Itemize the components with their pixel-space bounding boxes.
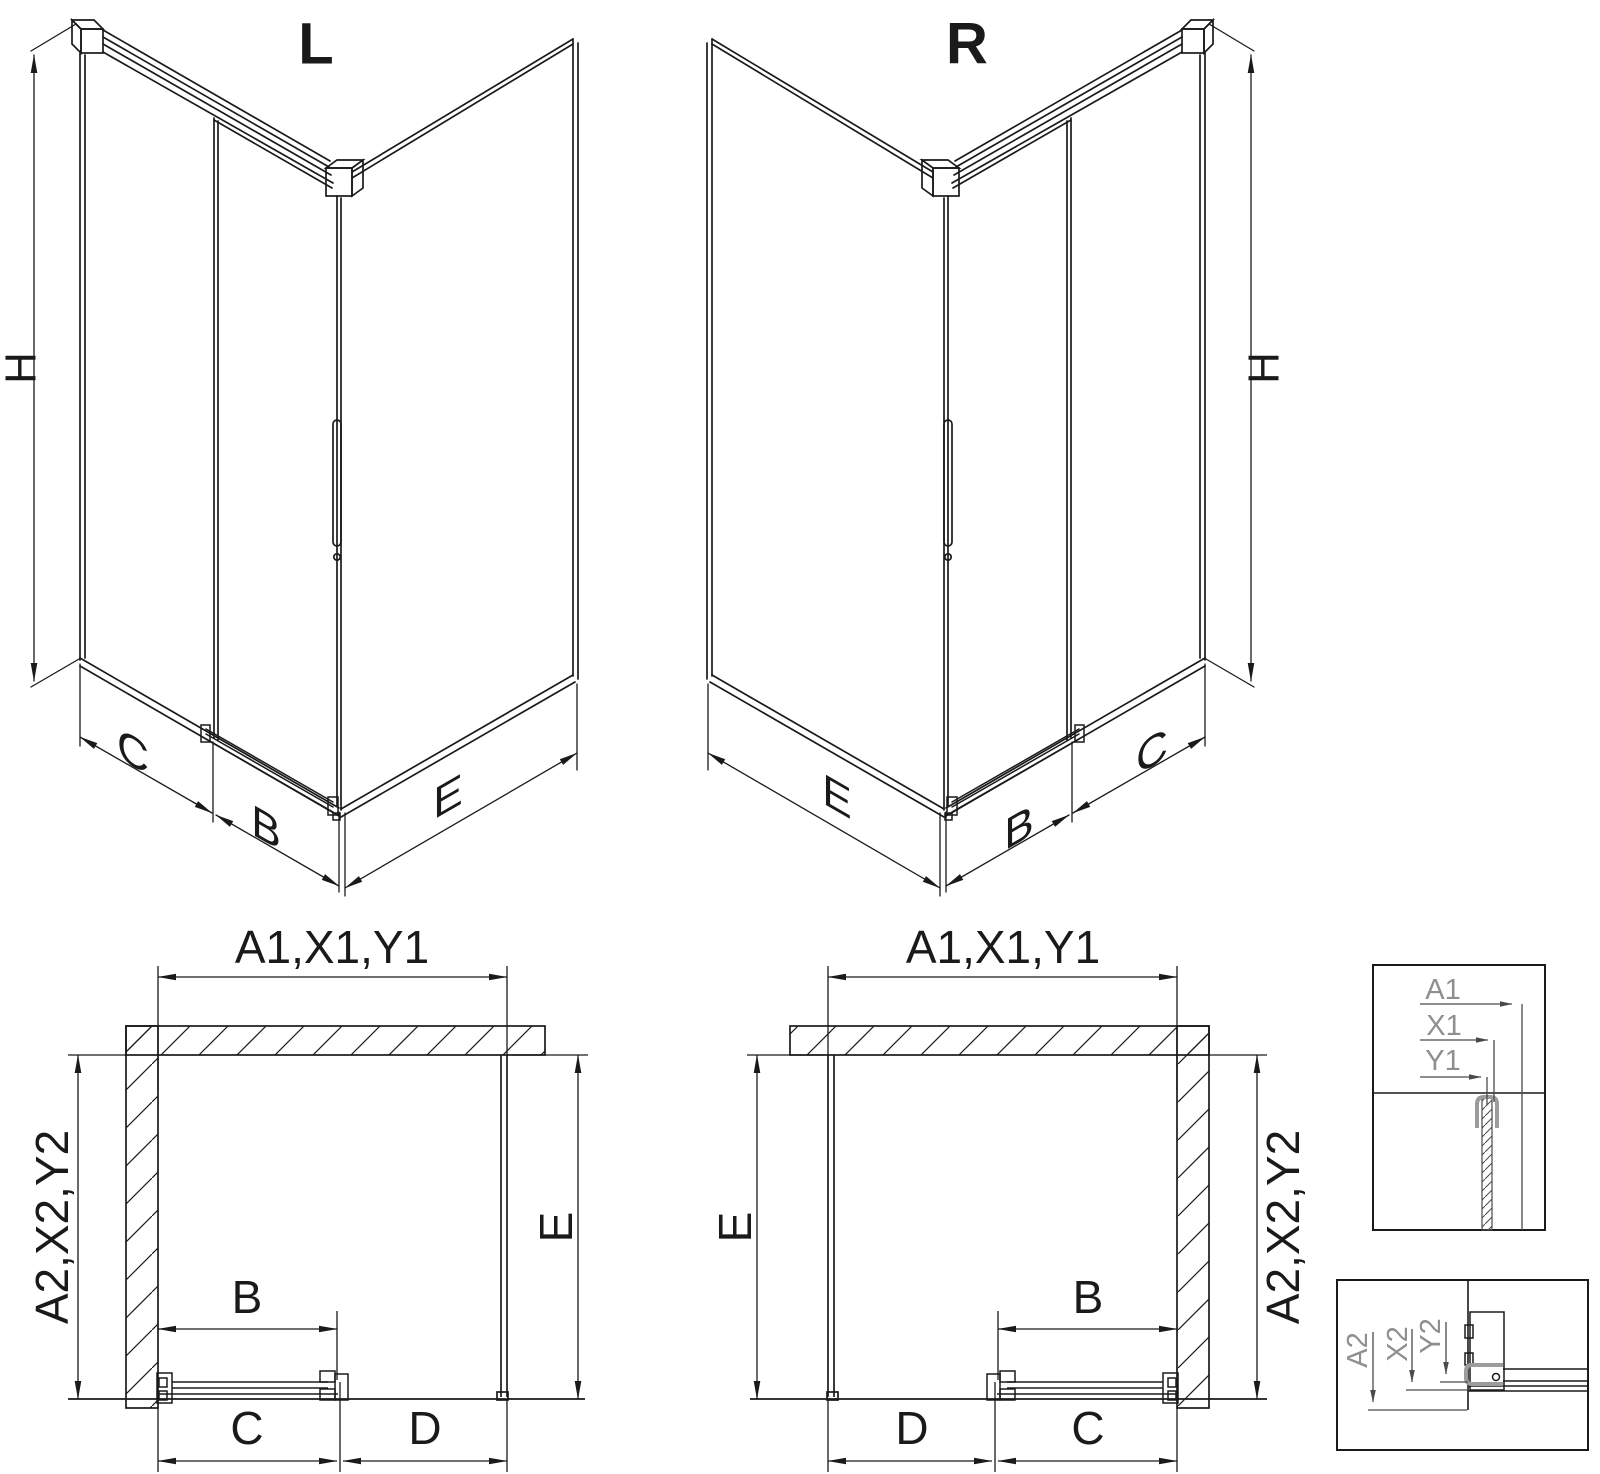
- plan-left-door-label: B: [232, 1271, 263, 1323]
- plan-right-depth-label: A2,X2,Y2: [1257, 1130, 1309, 1324]
- detail-top-a1-label: A1: [1425, 974, 1460, 1006]
- iso-right-fixed-panel-label: C: [1136, 718, 1168, 785]
- plan-left-bottom-outer-label: D: [408, 1402, 441, 1454]
- detail-top-y1-label: Y1: [1425, 1045, 1460, 1077]
- detail-bottom-x2-label: X2: [1382, 1326, 1414, 1361]
- door-rail-section: [1465, 1312, 1588, 1391]
- plan-left-depth-label: A2,X2,Y2: [26, 1130, 78, 1324]
- plan-left-bottom-inner-label: C: [230, 1402, 263, 1454]
- iso-enclosure-geometry-right: [707, 20, 1254, 896]
- plan-right-wall-hatch: [790, 1026, 1209, 1408]
- iso-left-title: L: [298, 12, 333, 77]
- iso-left-side-panel-label: E: [433, 764, 462, 830]
- plan-right-side-label: E: [709, 1212, 761, 1243]
- plan-right-door-label: B: [1073, 1271, 1104, 1323]
- dim-bottom: [158, 1382, 507, 1472]
- corner-connector: [326, 160, 363, 196]
- plan-left-wall-hatch: [126, 1026, 545, 1408]
- detail-bottom-a2-label: A2: [1342, 1332, 1374, 1367]
- detail-bottom-section: [1337, 1280, 1588, 1450]
- plan-left-side-label: E: [530, 1212, 582, 1243]
- iso-enclosure-geometry: [31, 20, 578, 896]
- iso-right-title: R: [946, 12, 988, 77]
- iso-left-fixed-panel-label: C: [117, 718, 149, 785]
- plan-right-bottom-outer-label: D: [895, 1402, 928, 1454]
- iso-right-height-label: H: [1240, 352, 1289, 384]
- iso-left-door-panel-label: B: [251, 795, 280, 861]
- iso-right-door-panel-label: B: [1004, 795, 1033, 861]
- detail-top-x1-label: X1: [1426, 1010, 1461, 1042]
- glass-section: [1482, 1098, 1492, 1230]
- iso-right-side-panel-label: E: [822, 764, 851, 830]
- plan-right-width-label: A1,X1,Y1: [906, 921, 1100, 973]
- plan-right-bottom-inner-label: C: [1071, 1402, 1104, 1454]
- roller-wheel: [1493, 1374, 1500, 1381]
- technical-drawing-page: L H C B E R H C B E A1,X1,Y1 A2,X2,Y2 E …: [0, 0, 1600, 1474]
- detail-bottom-y2-label: Y2: [1415, 1318, 1447, 1353]
- iso-left-height-label: H: [0, 352, 46, 384]
- shower-enclosure-diagram: L H C B E R H C B E A1,X1,Y1 A2,X2,Y2 E …: [0, 0, 1600, 1474]
- plan-left-width-label: A1,X1,Y1: [235, 921, 429, 973]
